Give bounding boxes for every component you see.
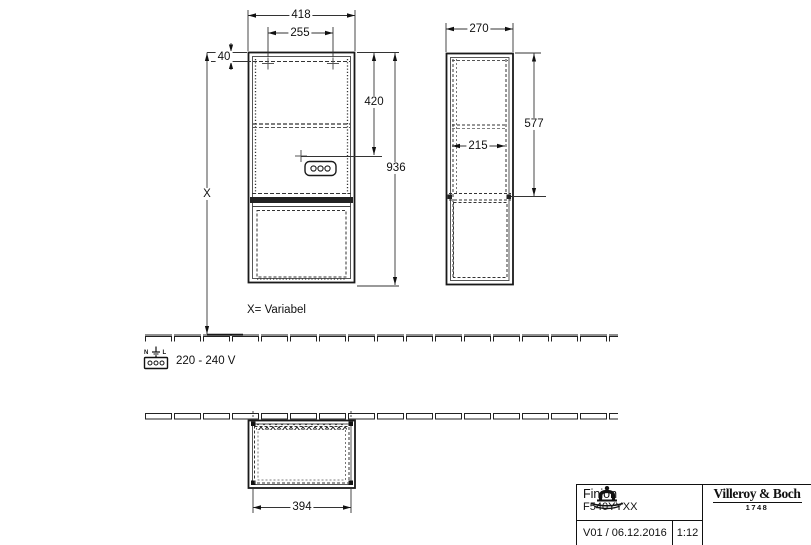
dim-hole-spacing: 255 [288,27,311,39]
dim-hole-offset: 40 [216,51,233,63]
fountain-icon [577,485,637,513]
plan-view [249,411,356,488]
technical-drawing-canvas: 418 255 40 420 936 X 270 577 215 394 X= … [0,0,811,545]
brand-year: 1748 [746,503,769,512]
dim-side-depth: 270 [467,23,490,35]
mounting-hole-markers [262,58,339,70]
dim-plan-body-width: 394 [290,501,313,513]
variable-note: X= Variabel [247,304,306,317]
brand-name: Villeroy & Boch [713,487,802,503]
socket-line-label: L [163,350,167,357]
title-block: Finion F540YYXX V01 / 06.12.2016 1:12 Vi… [576,484,811,545]
wall-line-plan [145,413,618,420]
floor-line-elevation [145,335,618,342]
dim-front-width: 418 [289,9,312,21]
voltage-label: 220 - 240 V [176,355,235,368]
drawing-scale: 1:12 [672,521,702,545]
brand-logo: Villeroy & Boch 1748 [703,485,811,545]
drawing-linework [0,0,811,545]
side-view-dimensions [446,23,546,197]
front-view [249,53,355,283]
front-view-dimensions [205,10,399,335]
socket-neutral-label: N [144,350,148,357]
drawing-version: V01 / 06.12.2016 [577,527,672,539]
dim-height-variable: X [201,188,213,200]
dim-side-inner-depth: 215 [466,140,489,152]
socket-outlet-symbol [295,150,382,176]
side-view [447,54,514,285]
dim-socket-height: 420 [362,96,385,108]
dim-side-upper-height: 577 [522,118,545,130]
dim-total-height: 936 [384,162,407,174]
